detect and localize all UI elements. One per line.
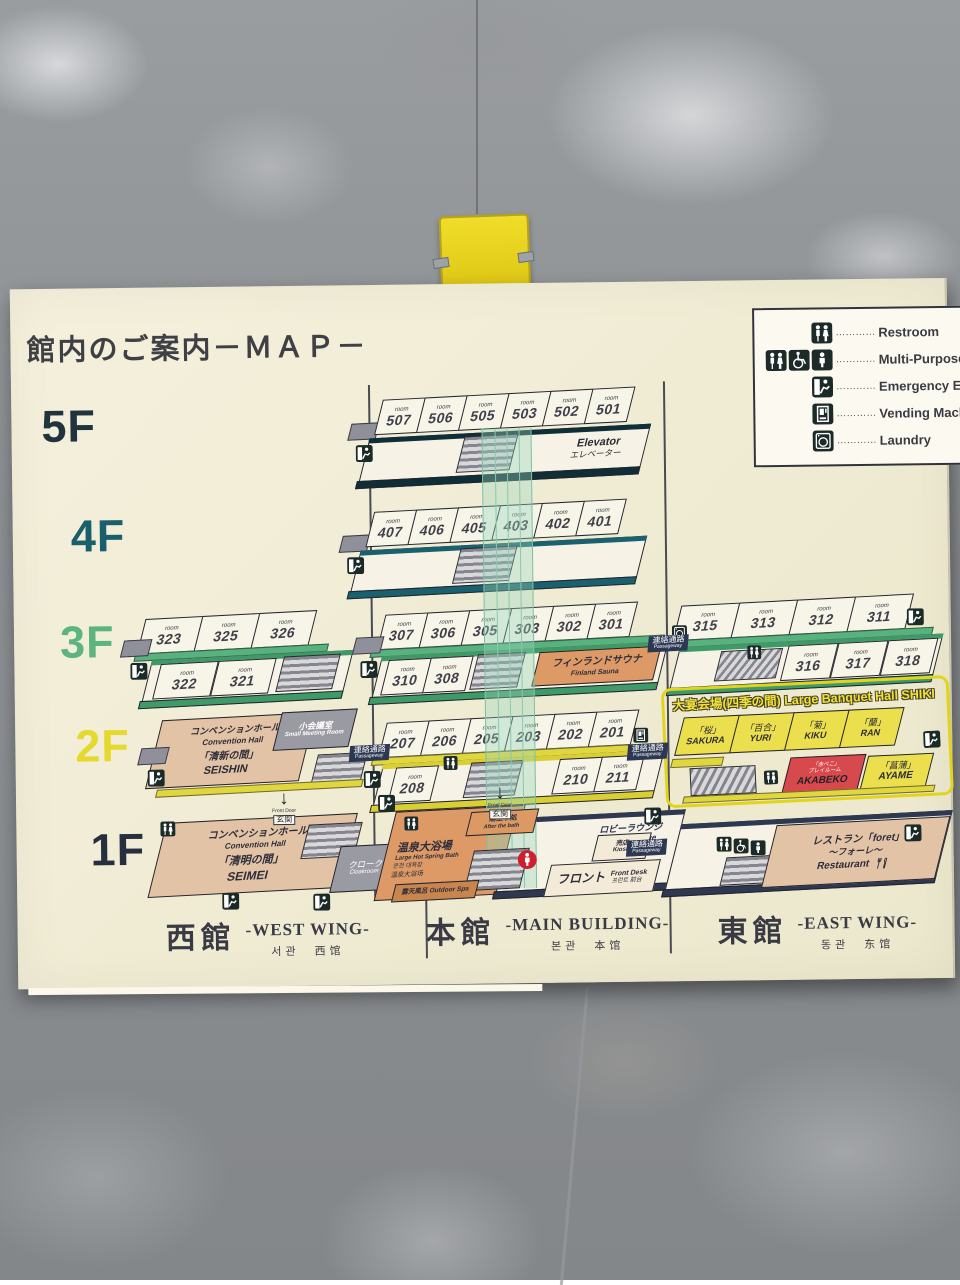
emergency-exit-icon: [148, 770, 165, 787]
outdoor-spa: 露天風呂 Outdoor Spa: [391, 880, 479, 903]
passageway-label: 連絡通路Passageway: [626, 839, 667, 857]
small-meeting-room: 小会議室 Small Meeting Room: [272, 708, 358, 751]
front-desk: フロント Front Desk 프런트 前台: [543, 859, 661, 897]
restroom-icon: [716, 837, 731, 852]
stairs: [469, 652, 526, 690]
map-title: 館内のご案内－ＭＡＰ－: [26, 323, 368, 369]
legend-row-multipurpose: ………… Multi-Purpose Re: [725, 345, 960, 375]
floor-label-2f: 2F: [75, 720, 130, 773]
room-cell: room208: [387, 765, 439, 803]
restroom-icon: [811, 322, 832, 343]
legend-dots: …………: [836, 354, 876, 365]
legend-row-vending: ………… Vending Machine: [767, 398, 960, 428]
passageway-label: 連絡通路Passageway: [627, 743, 668, 761]
room-cell: room211: [593, 755, 645, 793]
block-3d: [120, 639, 153, 658]
floor-label-4f: 4F: [70, 510, 125, 563]
floor-label-1f: 1F: [90, 824, 145, 877]
stairs: [456, 434, 519, 473]
emergency-exit-icon: [812, 376, 833, 397]
floor-label-5f: 5F: [41, 400, 96, 453]
vending-machine-icon: [812, 403, 833, 424]
legend-dots: …………: [836, 408, 876, 419]
wing-label-east: 東館 -EAST WING- 동관 东馆: [717, 904, 917, 953]
legend-row-restroom: ………… Restroom: [766, 318, 960, 348]
restroom-icon: [160, 821, 175, 836]
wing-label-main: 本館 -MAIN BUILDING- 본관 本馆: [425, 905, 669, 955]
legend-dots: …………: [835, 327, 875, 338]
wall-seam-top: [476, 0, 478, 214]
map-sign-board: 館内のご案内－ＭＡＰ－ ………… Restroom ………… Multi-Pur…: [10, 278, 955, 989]
banquet-room-ran: 「蘭」RAN: [839, 707, 905, 748]
room-cell: room308: [422, 656, 474, 694]
baby-icon: [812, 349, 833, 370]
passageway-label: 連絡通路Passageway: [349, 744, 390, 762]
room-cell: room311: [846, 593, 914, 632]
block-3d: [352, 636, 385, 655]
laundry-icon: [813, 430, 834, 451]
front-entrance-arrow: ↓ Front Door 玄関: [488, 783, 512, 819]
concrete-wall: 館内のご案内－ＭＡＰ－ ………… Restroom ………… Multi-Pur…: [0, 0, 960, 1280]
room-cell: room401: [575, 499, 627, 537]
restroom-icon: [766, 350, 787, 371]
room-cell: room326: [250, 610, 317, 649]
restroom-icon: [404, 816, 418, 830]
stairs: [452, 545, 518, 583]
clip-metal-right: [517, 251, 534, 263]
room-cell: room318: [880, 638, 939, 676]
legend-row-exit: ………… Emergency Exit: [767, 371, 960, 401]
stairs: [275, 654, 341, 692]
emergency-exit-icon: [378, 795, 395, 812]
banquet-hall-shiki-box: 大宴会場(四季の間) Large Banquet Hall SHIKI 「桜」S…: [661, 675, 954, 808]
wheelchair-icon: [789, 350, 810, 371]
vending-machine-icon: [633, 728, 648, 743]
emergency-exit-icon: [364, 771, 381, 788]
room-cell: room322: [152, 661, 219, 700]
emergency-exit-icon: [222, 893, 239, 910]
emergency-exit-icon: [644, 807, 661, 824]
emergency-exit-icon: [356, 445, 373, 462]
wing-label-west: 西館 -WEST WING- 서관 西馆: [165, 911, 370, 960]
elevator-label: Elevatorエレベーター: [569, 435, 626, 460]
front-entrance-arrow: ↓ Front Door 玄関: [272, 789, 296, 825]
stairs: [689, 765, 756, 796]
emergency-exit-icon: [923, 730, 941, 748]
legend-row-laundry: ………… Laundry: [768, 425, 960, 455]
restroom-icon: [443, 756, 457, 770]
restroom-icon: [764, 770, 779, 785]
room-cell: room301: [586, 601, 638, 639]
room-cell: room501: [584, 386, 636, 424]
banquet-room-row: 「桜」SAKURA 「百合」YURI 「菊」KIKU 「蘭」RAN: [675, 707, 905, 756]
emergency-exit-icon: [347, 557, 364, 574]
restroom-icon: [747, 645, 761, 659]
floor-label-3f: 3F: [60, 616, 115, 669]
legend-dots: …………: [837, 435, 877, 446]
emergency-exit-icon: [907, 608, 924, 625]
wall-seam-bottom: [560, 986, 589, 1285]
block-3d: [137, 747, 170, 766]
baby-icon: [751, 840, 766, 855]
room-cell: room201: [588, 709, 640, 747]
emergency-exit-icon: [130, 663, 147, 680]
utensils-icon: [874, 856, 890, 870]
legend-dots: …………: [836, 381, 876, 392]
emergency-exit-icon: [904, 824, 921, 841]
room-cell: room321: [210, 658, 277, 697]
passageway-label: 連絡通路Passageway: [647, 634, 688, 652]
wheelchair-icon: [734, 838, 749, 853]
emergency-exit-icon: [313, 893, 330, 910]
restaurant-foret: レストラン「foret」 ～フォーレ～ Restaurant: [761, 816, 950, 888]
finland-sauna: フィンランドサウナ Finland Sauna: [531, 646, 661, 687]
emergency-exit-icon: [360, 661, 377, 678]
you-are-here-marker: [517, 849, 538, 870]
legend: ………… Restroom ………… Multi-Purpose Re ……………: [752, 305, 960, 467]
